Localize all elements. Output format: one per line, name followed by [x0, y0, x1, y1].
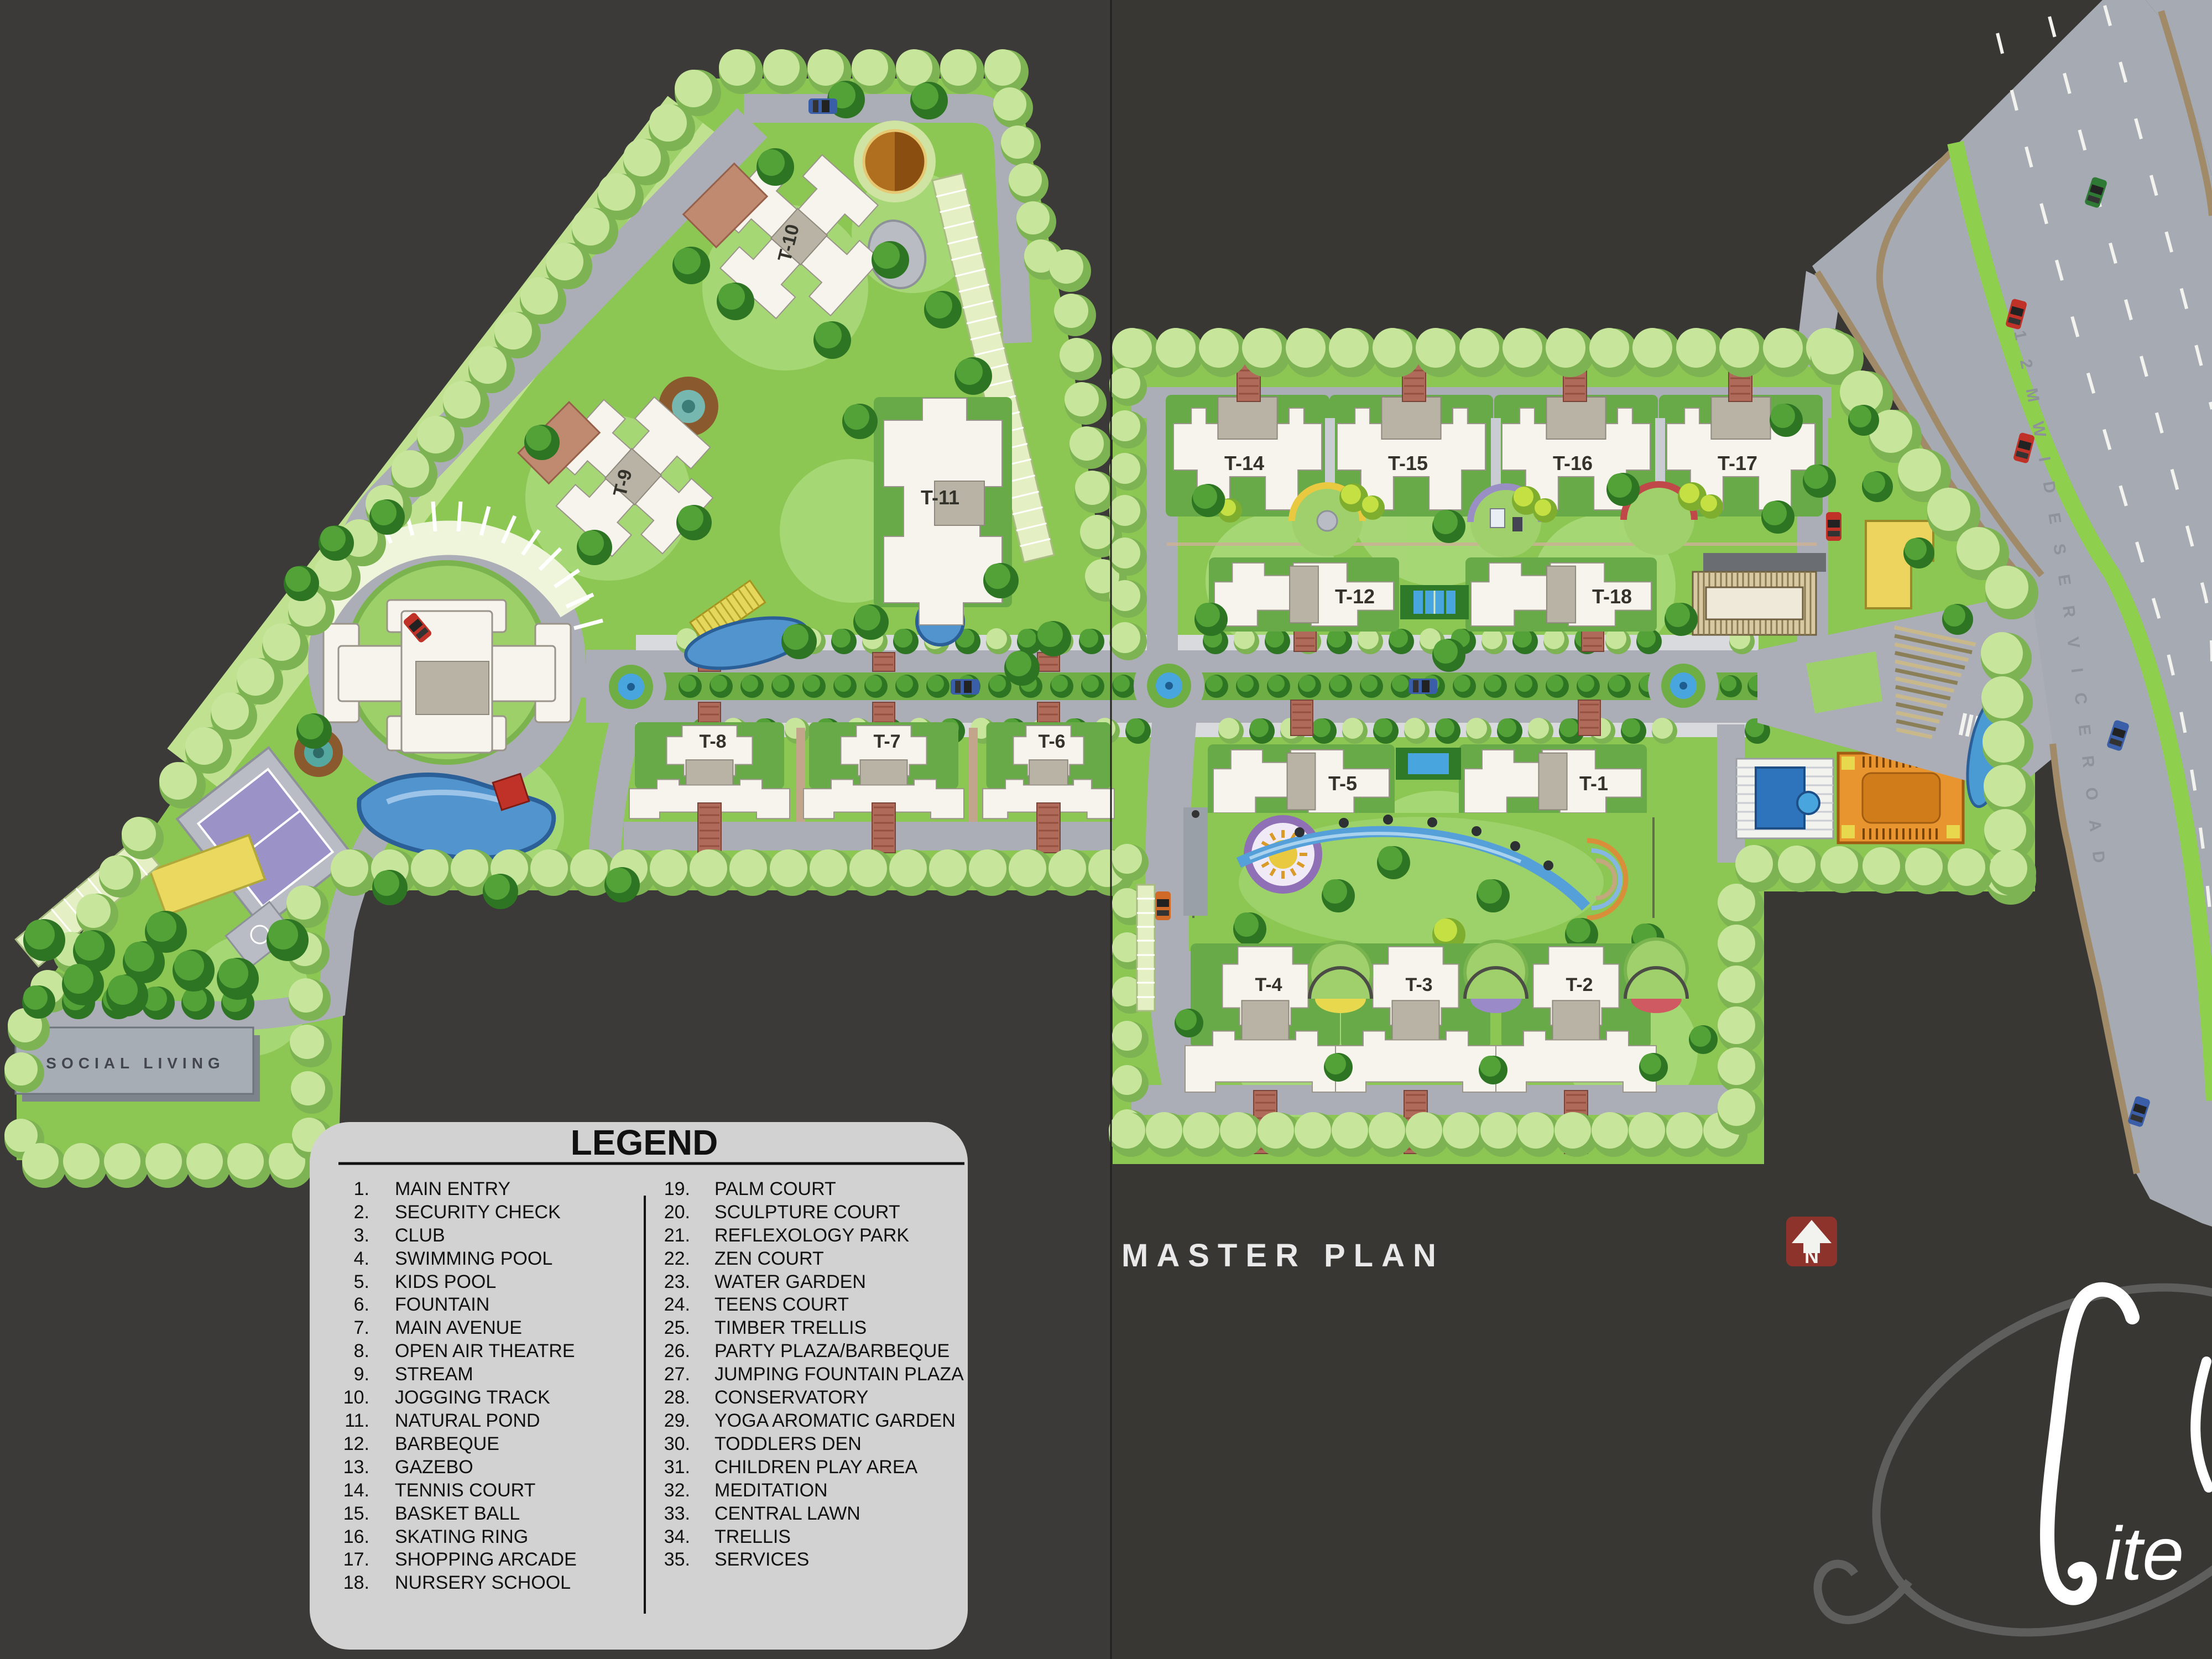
svg-text:SERVICES: SERVICES: [714, 1549, 809, 1570]
svg-text:LEGEND: LEGEND: [571, 1123, 718, 1162]
svg-text:10.: 10.: [343, 1387, 369, 1408]
svg-text:TRELLIS: TRELLIS: [714, 1526, 791, 1547]
svg-text:SKATING RING: SKATING RING: [395, 1526, 528, 1547]
svg-text:7.: 7.: [354, 1317, 369, 1338]
svg-text:MASTER PLAN: MASTER PLAN: [1121, 1238, 1444, 1274]
svg-text:STREAM: STREAM: [395, 1364, 473, 1385]
svg-text:CHILDREN PLAY AREA: CHILDREN PLAY AREA: [714, 1457, 918, 1478]
svg-text:23.: 23.: [664, 1271, 690, 1292]
svg-text:OPEN AIR THEATRE: OPEN AIR THEATRE: [395, 1340, 575, 1361]
svg-text:N: N: [1804, 1245, 1819, 1267]
svg-text:PARTY PLAZA/BARBEQUE: PARTY PLAZA/BARBEQUE: [714, 1340, 950, 1361]
svg-text:T-11: T-11: [921, 486, 959, 509]
svg-text:15.: 15.: [343, 1503, 369, 1524]
svg-text:SCULPTURE COURT: SCULPTURE COURT: [714, 1202, 900, 1223]
svg-text:T-8: T-8: [699, 731, 726, 752]
svg-text:28.: 28.: [664, 1387, 690, 1408]
svg-text:12.: 12.: [343, 1433, 369, 1454]
svg-text:T-15: T-15: [1388, 452, 1428, 474]
svg-text:35.: 35.: [664, 1549, 690, 1570]
svg-text:CENTRAL LAWN: CENTRAL LAWN: [714, 1503, 860, 1524]
svg-text:TODDLERS DEN: TODDLERS DEN: [714, 1433, 862, 1454]
svg-text:T-3: T-3: [1405, 974, 1432, 995]
svg-text:SHOPPING ARCADE: SHOPPING ARCADE: [395, 1549, 577, 1570]
svg-text:T-16: T-16: [1553, 452, 1593, 474]
svg-text:14.: 14.: [343, 1480, 369, 1501]
svg-text:TIMBER TRELLIS: TIMBER TRELLIS: [714, 1317, 867, 1338]
svg-text:T-12: T-12: [1335, 585, 1375, 608]
svg-text:T-1: T-1: [1579, 772, 1608, 795]
svg-text:NURSERY SCHOOL: NURSERY SCHOOL: [395, 1572, 571, 1593]
svg-text:32.: 32.: [664, 1480, 690, 1501]
svg-text:2.: 2.: [354, 1202, 369, 1223]
svg-text:ZEN COURT: ZEN COURT: [714, 1248, 824, 1269]
svg-text:T-18: T-18: [1592, 585, 1632, 608]
svg-text:ite: ite: [2105, 1511, 2184, 1595]
svg-text:19.: 19.: [664, 1178, 690, 1199]
svg-text:JOGGING TRACK: JOGGING TRACK: [395, 1387, 550, 1408]
svg-text:GAZEBO: GAZEBO: [395, 1457, 473, 1478]
svg-text:T-4: T-4: [1255, 974, 1282, 995]
svg-text:SWIMMING POOL: SWIMMING POOL: [395, 1248, 552, 1269]
svg-text:SOCIAL LIVING: SOCIAL LIVING: [46, 1055, 225, 1072]
svg-text:31.: 31.: [664, 1457, 690, 1478]
svg-text:11.: 11.: [345, 1410, 369, 1431]
svg-text:CONSERVATORY: CONSERVATORY: [714, 1387, 868, 1408]
svg-text:T-6: T-6: [1038, 731, 1065, 752]
svg-text:PALM COURT: PALM COURT: [714, 1178, 836, 1199]
svg-text:18.: 18.: [343, 1572, 369, 1593]
svg-text:BASKET BALL: BASKET BALL: [395, 1503, 520, 1524]
svg-text:1.: 1.: [354, 1178, 369, 1199]
svg-text:JUMPING FOUNTAIN PLAZA: JUMPING FOUNTAIN PLAZA: [714, 1364, 964, 1385]
svg-text:5.: 5.: [354, 1271, 369, 1292]
svg-text:9.: 9.: [354, 1364, 369, 1385]
svg-text:NATURAL POND: NATURAL POND: [395, 1410, 540, 1431]
svg-text:YOGA AROMATIC GARDEN: YOGA AROMATIC GARDEN: [714, 1410, 956, 1431]
svg-text:20.: 20.: [664, 1202, 690, 1223]
svg-text:13.: 13.: [343, 1457, 369, 1478]
svg-text:T-2: T-2: [1566, 974, 1593, 995]
svg-text:CLUB: CLUB: [395, 1225, 445, 1246]
svg-text:TENNIS COURT: TENNIS COURT: [395, 1480, 535, 1501]
svg-text:4.: 4.: [354, 1248, 369, 1269]
svg-text:29.: 29.: [664, 1410, 690, 1431]
svg-text:22.: 22.: [664, 1248, 690, 1269]
svg-text:3.: 3.: [354, 1225, 369, 1246]
svg-text:34.: 34.: [664, 1526, 690, 1547]
svg-text:SECURITY CHECK: SECURITY CHECK: [395, 1202, 561, 1223]
svg-text:REFLEXOLOGY PARK: REFLEXOLOGY PARK: [714, 1225, 909, 1246]
svg-text:T-5: T-5: [1328, 772, 1357, 795]
svg-text:MAIN ENTRY: MAIN ENTRY: [395, 1178, 510, 1199]
svg-text:KIDS POOL: KIDS POOL: [395, 1271, 496, 1292]
svg-text:33.: 33.: [664, 1503, 690, 1524]
svg-text:MAIN AVENUE: MAIN AVENUE: [395, 1317, 522, 1338]
svg-text:BARBEQUE: BARBEQUE: [395, 1433, 499, 1454]
svg-text:T-14: T-14: [1224, 452, 1264, 474]
svg-text:21.: 21.: [664, 1225, 690, 1246]
svg-text:T-17: T-17: [1718, 452, 1757, 474]
svg-text:26.: 26.: [664, 1340, 690, 1361]
svg-text:FOUNTAIN: FOUNTAIN: [395, 1294, 489, 1315]
svg-text:25.: 25.: [664, 1317, 690, 1338]
svg-text:6.: 6.: [354, 1294, 369, 1315]
svg-text:WATER GARDEN: WATER GARDEN: [714, 1271, 866, 1292]
svg-text:8.: 8.: [354, 1340, 369, 1361]
svg-text:16.: 16.: [343, 1526, 369, 1547]
svg-text:MEDITATION: MEDITATION: [714, 1480, 828, 1501]
svg-text:17.: 17.: [343, 1549, 369, 1570]
svg-text:27.: 27.: [664, 1364, 690, 1385]
svg-text:30.: 30.: [664, 1433, 690, 1454]
svg-text:T-7: T-7: [873, 731, 900, 752]
svg-text:24.: 24.: [664, 1294, 690, 1315]
svg-text:TEENS COURT: TEENS COURT: [714, 1294, 849, 1315]
